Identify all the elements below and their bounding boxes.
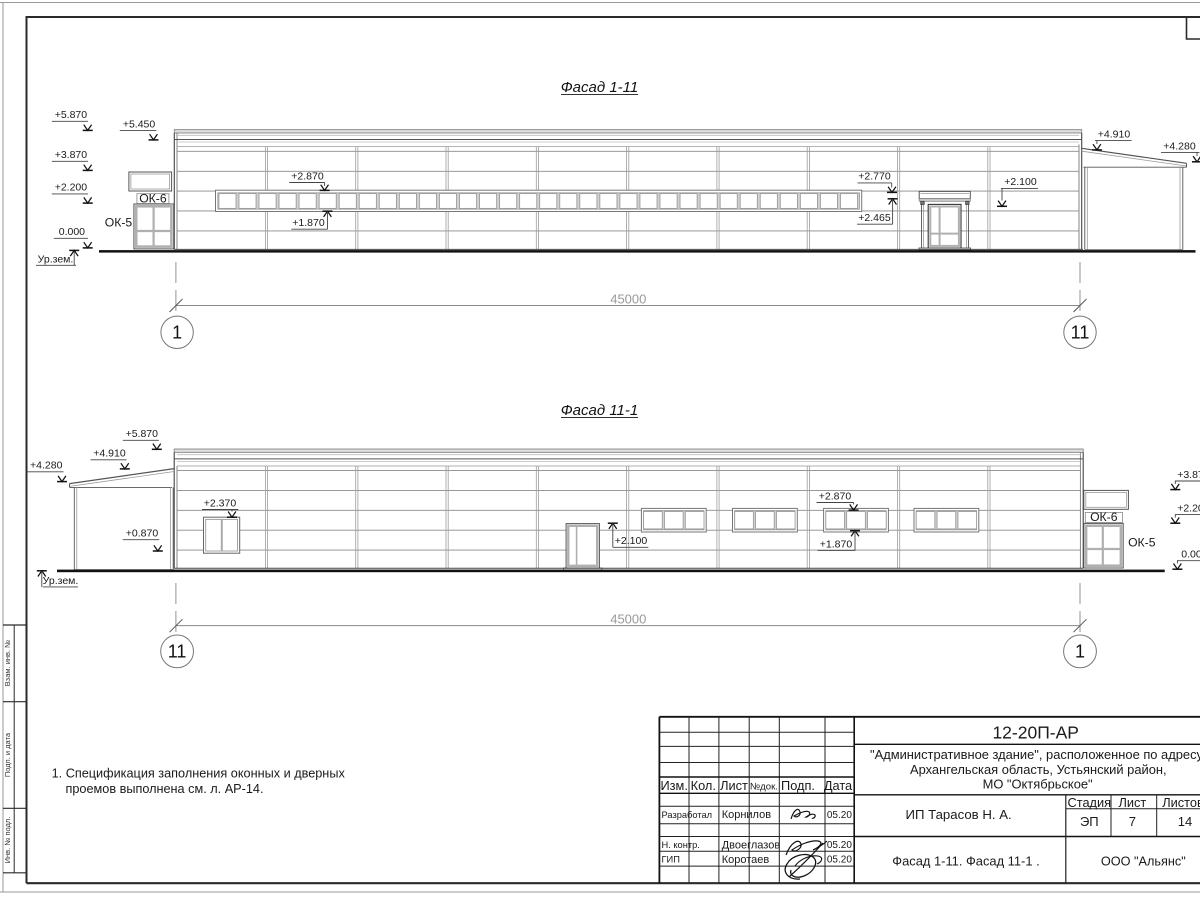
svg-text:+3.870: +3.870 [55, 149, 88, 161]
svg-text:Фасад 1-11. Фасад 11-1 .: Фасад 1-11. Фасад 11-1 . [892, 853, 1039, 868]
svg-text:+5.870: +5.870 [55, 109, 88, 121]
svg-text:проемов выполнена см. л. АР-14: проемов выполнена см. л. АР-14. [66, 782, 264, 796]
svg-text:+2.370: +2.370 [204, 497, 237, 509]
svg-text:ОК-6: ОК-6 [1090, 510, 1118, 524]
svg-text:+3.87: +3.87 [1177, 469, 1200, 481]
svg-text:ИП Тарасов Н. А.: ИП Тарасов Н. А. [906, 807, 1012, 822]
svg-text:+4.280: +4.280 [1163, 140, 1196, 152]
svg-text:Стадия: Стадия [1067, 795, 1111, 810]
svg-text:ГИП: ГИП [662, 854, 680, 864]
svg-text:+5.450: +5.450 [123, 118, 156, 130]
svg-text:Изм.: Изм. [660, 778, 687, 793]
svg-text:ОК-6: ОК-6 [139, 191, 167, 205]
svg-text:ЭП: ЭП [1080, 814, 1099, 829]
svg-text:Взам. инв. №: Взам. инв. № [3, 640, 12, 686]
svg-text:Инв. № подл.: Инв. № подл. [3, 817, 12, 864]
svg-text:+2.770: +2.770 [858, 171, 891, 183]
svg-text:0.000: 0.000 [59, 226, 85, 238]
svg-text:+2.200: +2.200 [55, 182, 88, 194]
svg-text:Коротаев: Коротаев [722, 854, 770, 866]
svg-text:1. Спецификация заполнения око: 1. Спецификация заполнения оконных и две… [52, 767, 346, 781]
svg-text:+2.100: +2.100 [615, 535, 648, 547]
svg-text:Подп. и дата: Подп. и дата [3, 732, 12, 777]
svg-text:Фасад 1-11: Фасад 1-11 [561, 79, 638, 96]
svg-text:Разработал: Разработал [662, 810, 713, 820]
svg-text:Ур.зем.: Ур.зем. [38, 254, 74, 266]
svg-text:+0.870: +0.870 [126, 528, 159, 540]
svg-text:Корнилов: Корнилов [722, 809, 772, 821]
svg-text:+4.280: +4.280 [30, 460, 63, 472]
svg-text:1: 1 [1075, 642, 1085, 662]
svg-text:14: 14 [1178, 814, 1192, 829]
svg-text:Двоеглазов: Двоеглазов [722, 839, 781, 851]
svg-text:1: 1 [172, 323, 182, 343]
svg-text:№док.: №док. [750, 782, 778, 793]
svg-text:7: 7 [1129, 814, 1136, 829]
svg-text:+2.870: +2.870 [819, 490, 852, 502]
svg-text:+4.910: +4.910 [93, 448, 126, 460]
svg-text:МО "Октябрьское": МО "Октябрьское" [983, 777, 1093, 792]
svg-text:Н. контр.: Н. контр. [662, 840, 700, 850]
svg-text:45000: 45000 [610, 612, 646, 627]
svg-text:ООО "Альянс": ООО "Альянс" [1101, 854, 1186, 868]
svg-text:05.20: 05.20 [827, 855, 852, 866]
svg-text:11: 11 [1071, 323, 1090, 343]
svg-text:11: 11 [168, 642, 187, 662]
svg-text:+1.870: +1.870 [820, 538, 853, 550]
svg-text:+2.20: +2.20 [1177, 503, 1200, 515]
svg-text:12-20П-АР: 12-20П-АР [992, 722, 1079, 742]
svg-text:ОК-5: ОК-5 [1128, 535, 1156, 549]
svg-text:Кол.: Кол. [691, 778, 716, 793]
svg-text:+4.910: +4.910 [1098, 129, 1131, 141]
svg-text:Архангельская область, Устьянс: Архангельская область, Устьянский район, [910, 762, 1167, 777]
svg-text:Ур.зем.: Ур.зем. [43, 575, 79, 587]
svg-text:+2.465: +2.465 [858, 212, 891, 224]
svg-text:0.00: 0.00 [1181, 549, 1200, 561]
svg-text:Фасад 11-1: Фасад 11-1 [561, 402, 638, 419]
svg-text:ОК-5: ОК-5 [105, 215, 133, 229]
svg-text:45000: 45000 [610, 291, 646, 306]
svg-text:Лист: Лист [1118, 795, 1146, 810]
svg-text:+5.870: +5.870 [126, 428, 159, 440]
svg-text:Подп.: Подп. [781, 778, 815, 793]
svg-text:05.20: 05.20 [827, 810, 852, 821]
svg-text:+1.870: +1.870 [292, 217, 325, 229]
svg-text:"Административное здание", рас: "Административное здание", расположенное… [870, 747, 1200, 762]
svg-text:Листов: Листов [1162, 795, 1200, 810]
svg-text:+2.100: +2.100 [1004, 176, 1037, 188]
svg-text:+2.870: +2.870 [291, 170, 324, 182]
svg-text:Лист: Лист [720, 778, 748, 793]
svg-text:05.20: 05.20 [827, 840, 852, 851]
svg-text:Дата: Дата [824, 778, 853, 793]
